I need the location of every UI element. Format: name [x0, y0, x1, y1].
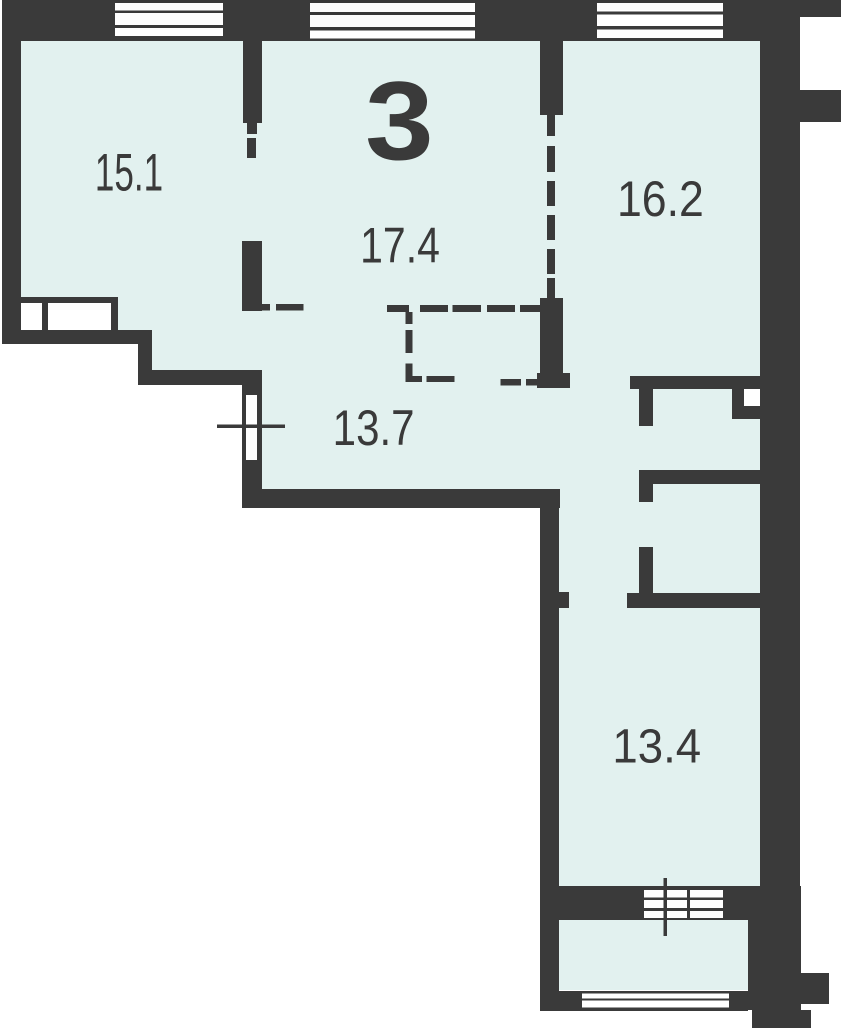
svg-text:15.1: 15.1: [95, 142, 163, 202]
svg-text:17.4: 17.4: [360, 218, 440, 274]
svg-text:13.4: 13.4: [612, 719, 701, 772]
svg-text:13.7: 13.7: [333, 399, 415, 455]
svg-text:16.2: 16.2: [617, 172, 704, 228]
svg-text:3: 3: [365, 59, 434, 183]
